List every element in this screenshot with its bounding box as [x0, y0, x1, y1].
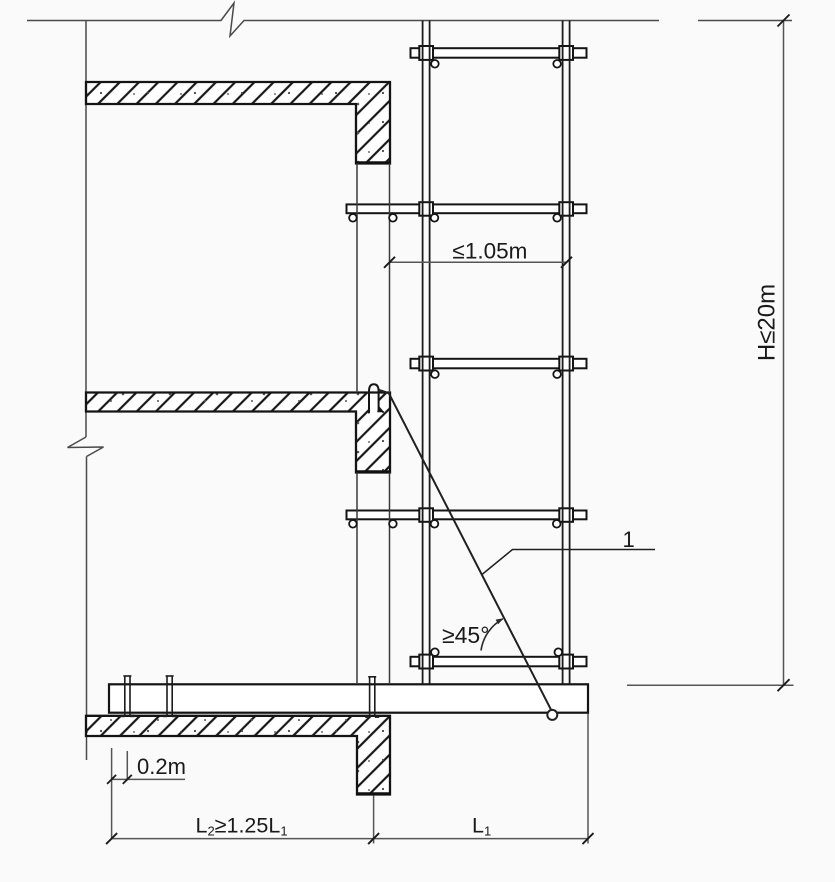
svg-text:H≤20m: H≤20m [754, 284, 781, 361]
svg-text:≥45°: ≥45° [442, 622, 489, 648]
svg-text:≤1.05m: ≤1.05m [453, 239, 528, 264]
svg-text:0.2m: 0.2m [137, 754, 186, 779]
svg-text:1: 1 [623, 527, 635, 552]
